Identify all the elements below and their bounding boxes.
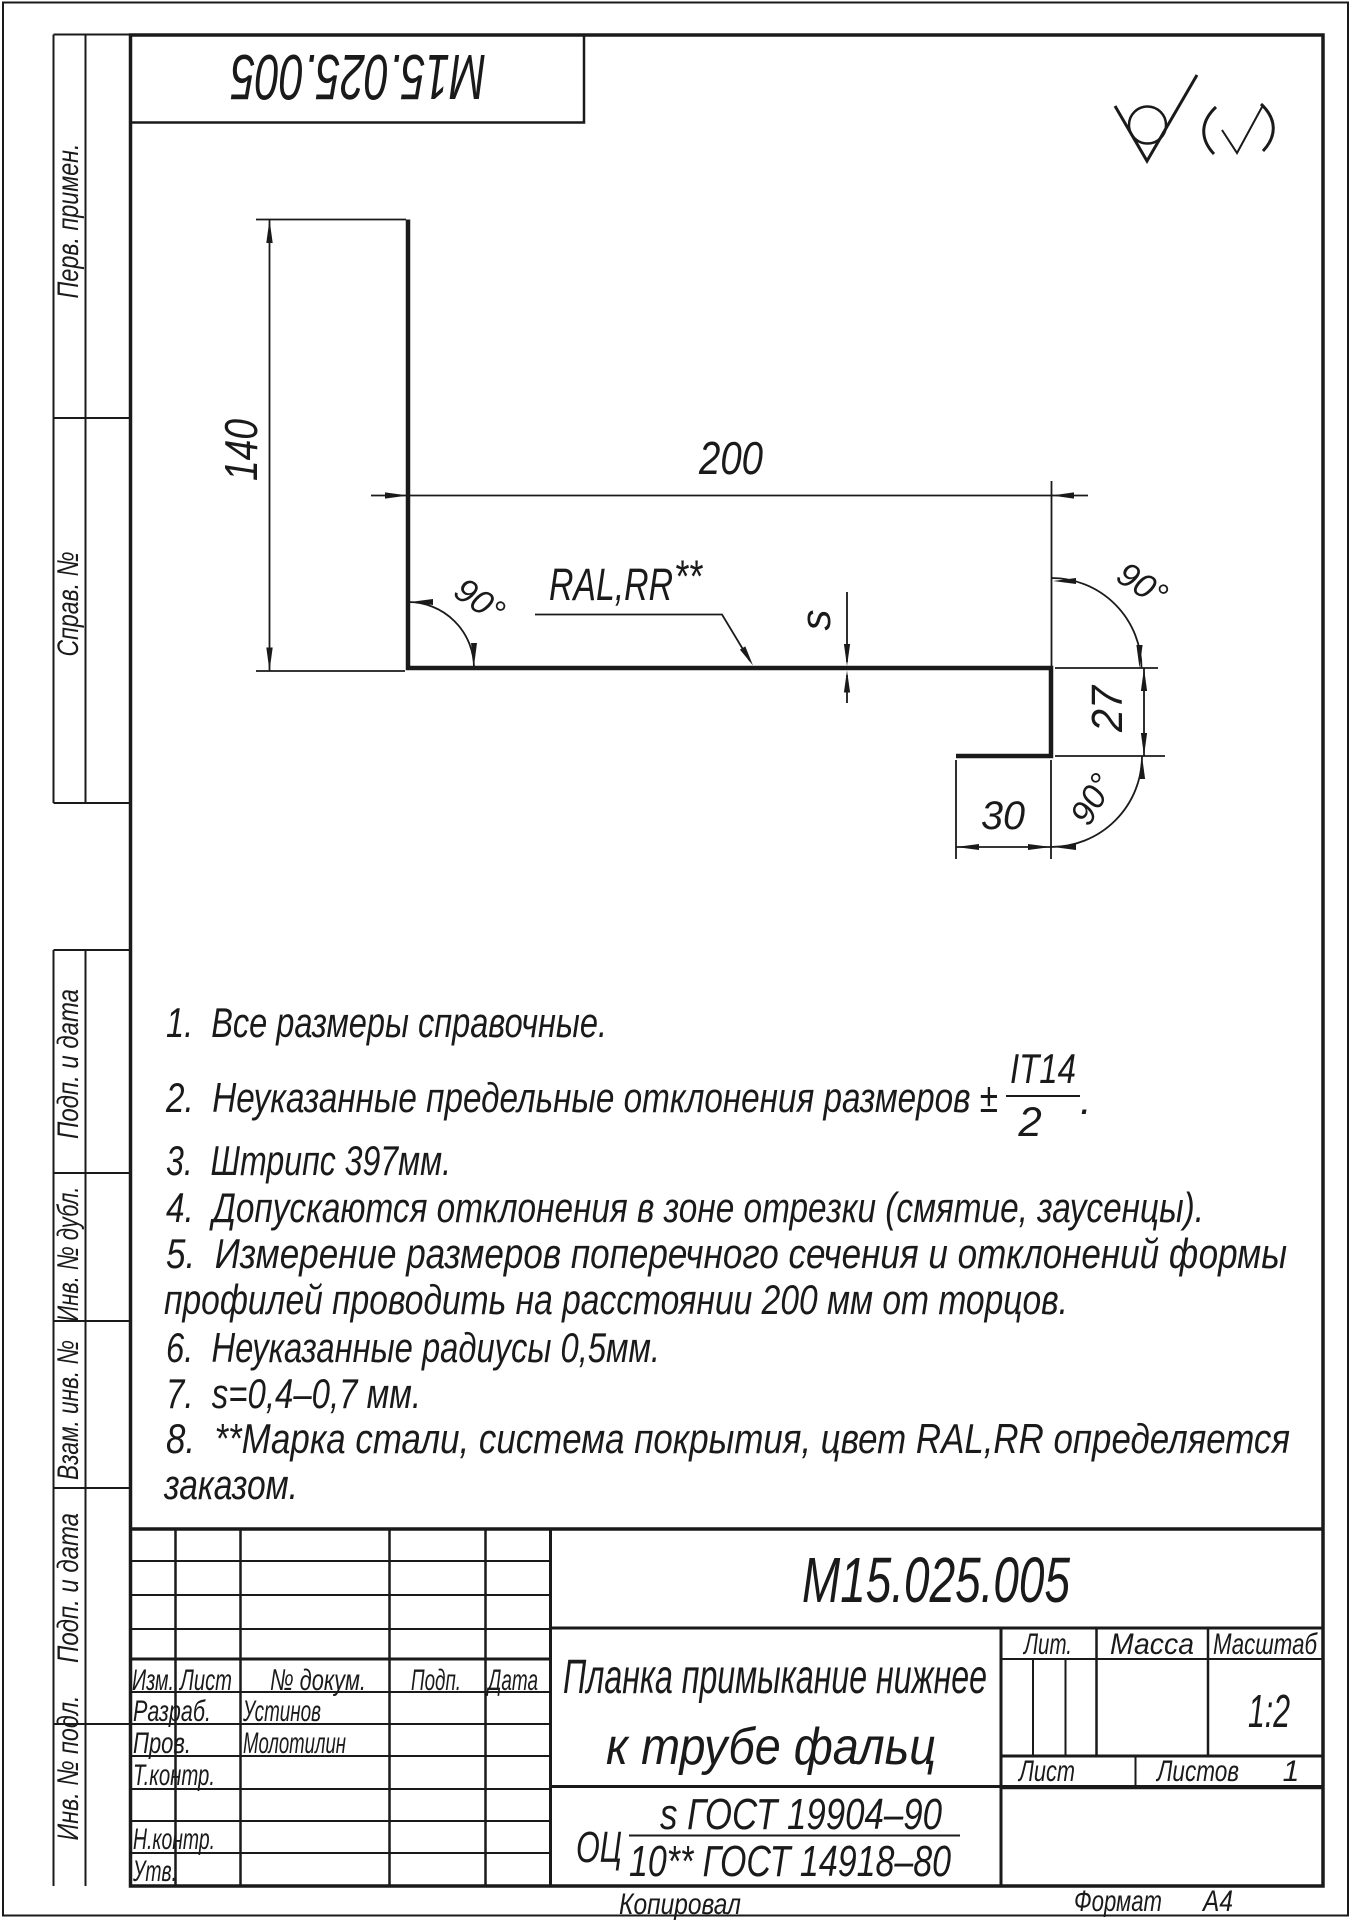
svg-text:2: 2 [1017,1098,1041,1145]
svg-text:М15.025.005: М15.025.005 [231,41,486,113]
svg-text:Лит.: Лит. [1023,1628,1072,1661]
svg-text:Подп.: Подп. [411,1664,461,1697]
svg-text:заказом.: заказом. [163,1461,298,1508]
svg-text:Лист: Лист [179,1664,232,1697]
svg-text:Листов: Листов [1155,1755,1239,1788]
svg-text:1: 1 [1283,1755,1300,1788]
svg-text:Масса: Масса [1110,1628,1194,1661]
svg-text:Копировал: Копировал [619,1888,741,1920]
svg-text:к трубе фальц: к трубе фальц [606,1718,936,1776]
svg-text:140: 140 [215,419,267,481]
svg-text:Т.контр.: Т.контр. [133,1759,215,1792]
svg-text:М15.025.005: М15.025.005 [802,1544,1070,1616]
svg-text:7. s=0,4–0,7 мм.: 7. s=0,4–0,7 мм. [166,1370,421,1417]
svg-text:3. Штрипс 397мм.: 3. Штрипс 397мм. [166,1137,451,1184]
svg-text:**: ** [674,551,703,602]
svg-text:RAL,RR: RAL,RR [549,559,673,610]
svg-text:Инв. № подл.: Инв. № подл. [52,1696,85,1841]
svg-text:200: 200 [698,432,763,484]
svg-text:Лист: Лист [1018,1755,1075,1788]
svg-text:4. Допускаются отклонения в з: 4. Допускаются отклонения в зоне отрезки… [166,1184,1204,1231]
svg-text:10** ГОСТ 14918–80: 10** ГОСТ 14918–80 [629,1837,951,1886]
svg-text:Формат: Формат [1074,1885,1162,1918]
svg-text:8. **Марка стали, система по: 8. **Марка стали, система покрытия, цвет… [166,1415,1290,1462]
svg-text:Справ. №: Справ. № [52,552,85,657]
svg-text:6. Неуказанные радиусы 0,5мм.: 6. Неуказанные радиусы 0,5мм. [166,1324,660,1371]
svg-text:Подп. и дата: Подп. и дата [52,989,85,1139]
svg-text:1:2: 1:2 [1248,1685,1290,1737]
svg-text:Разраб.: Разраб. [133,1695,211,1728]
svg-text:1. Все размеры справочные.: 1. Все размеры справочные. [166,999,607,1046]
svg-text:Устинов: Устинов [242,1695,321,1728]
svg-text:Планка примыкание нижнее: Планка примыкание нижнее [563,1651,987,1704]
svg-text:.: . [1080,1076,1092,1123]
svg-text:2. Неуказанные предельные отк: 2. Неуказанные предельные отклонения раз… [165,1074,998,1121]
svg-text:Перв. примен.: Перв. примен. [52,144,85,299]
svg-text:профилей проводить на расстоян: профилей проводить на расстоянии 200 мм … [164,1276,1068,1323]
svg-text:Взам. инв. №: Взам. инв. № [52,1340,85,1480]
svg-text:Пров.: Пров. [133,1727,191,1760]
svg-text:Изм.: Изм. [132,1664,174,1697]
svg-text:Подп. и дата: Подп. и дата [52,1513,85,1663]
svg-text:Молотилин: Молотилин [243,1727,346,1760]
svg-text:Дата: Дата [486,1664,538,1697]
svg-text:27: 27 [1083,685,1132,733]
svg-text:s: s [792,610,839,631]
svg-text:ОЦ: ОЦ [576,1823,622,1872]
svg-text:30: 30 [981,794,1025,838]
svg-text:№ докум.: № докум. [270,1664,366,1697]
svg-text:Инв. № дубл.: Инв. № дубл. [52,1187,85,1322]
svg-text:Масштаб: Масштаб [1213,1628,1318,1661]
svg-text:Утв.: Утв. [132,1855,177,1888]
svg-text:IT14: IT14 [1010,1045,1076,1092]
svg-text:5. Измерение размеров попереч: 5. Измерение размеров поперечного сечени… [166,1230,1287,1277]
svg-text:s ГОСТ 19904–90: s ГОСТ 19904–90 [660,1790,942,1839]
svg-text:А4: А4 [1201,1885,1233,1918]
svg-text:Н.контр.: Н.контр. [133,1823,215,1856]
